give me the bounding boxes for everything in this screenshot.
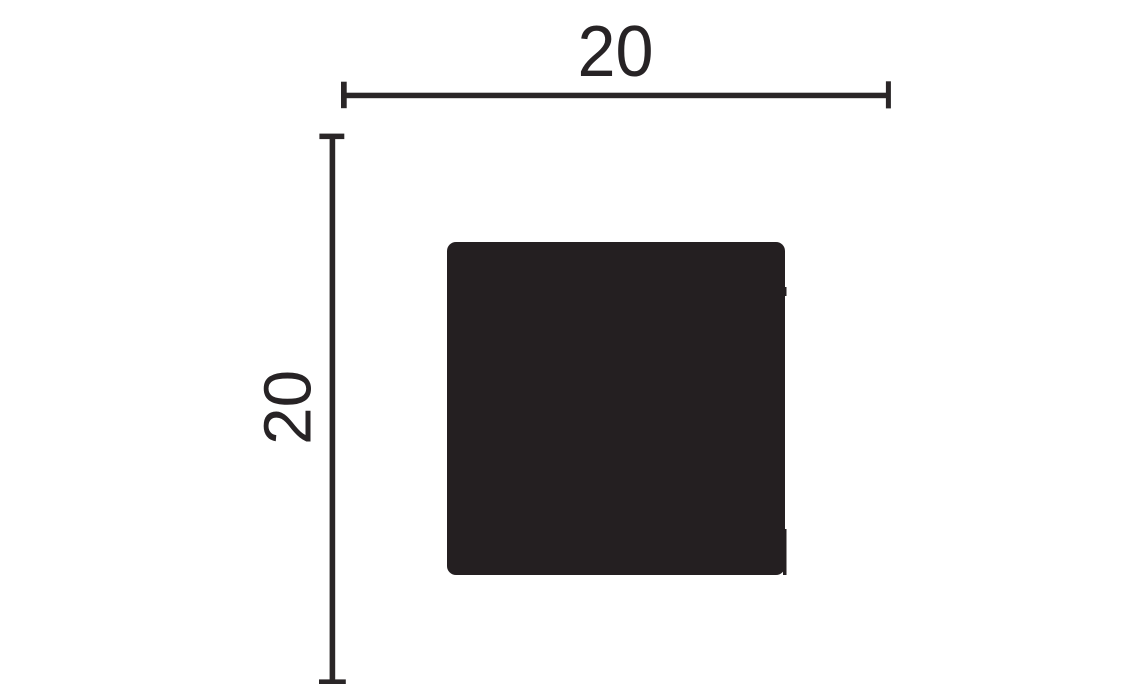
svg-text:20: 20	[251, 370, 326, 445]
svg-text:20: 20	[578, 12, 654, 92]
